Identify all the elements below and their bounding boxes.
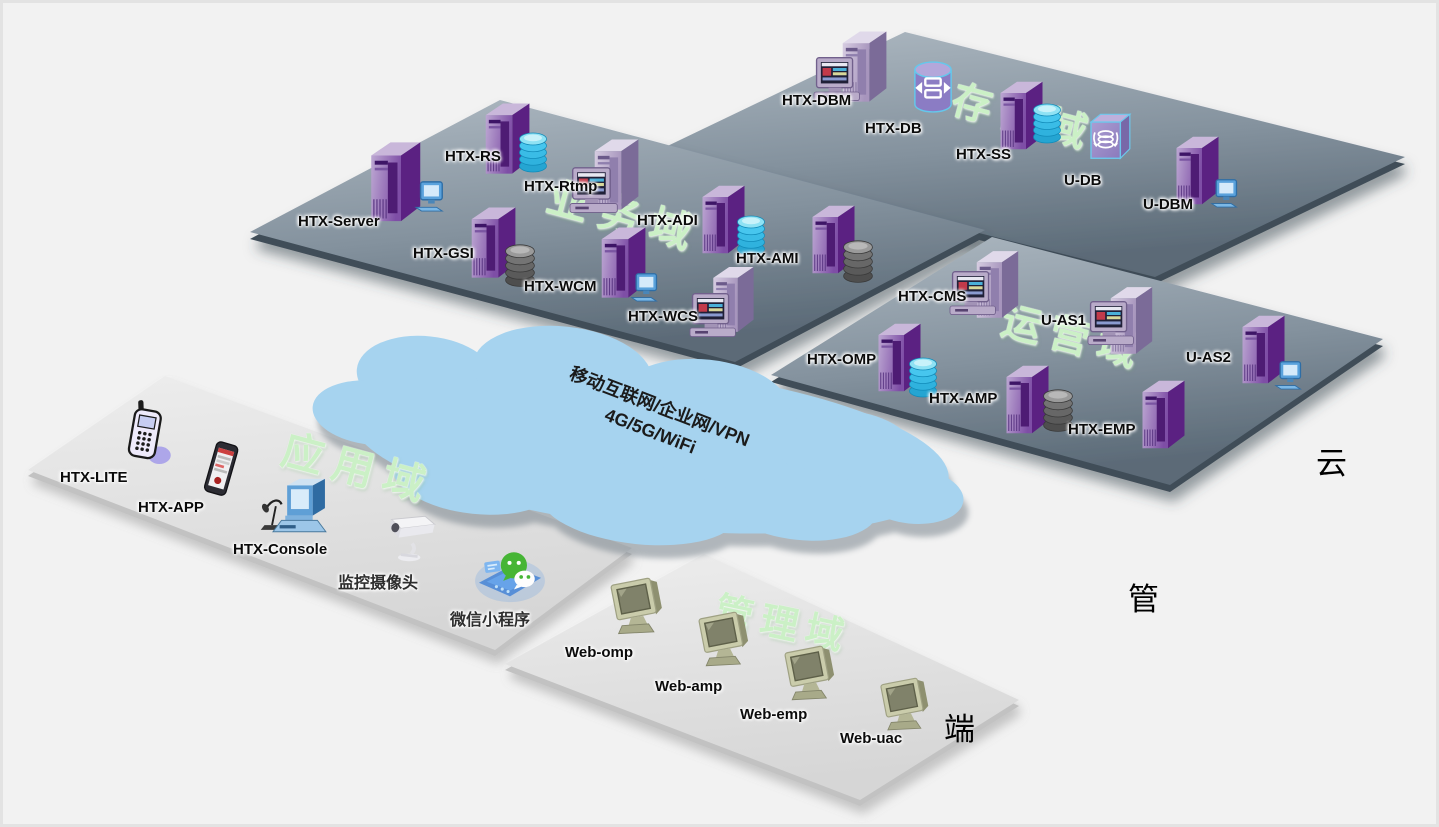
device-label: HTX-SS (956, 146, 1011, 163)
disk-stack-icon (842, 234, 874, 286)
device-label: HTX-LITE (60, 469, 128, 486)
device-label: Web-emp (740, 706, 807, 723)
device-label: HTX-WCS (628, 308, 698, 325)
device-label: Web-omp (565, 644, 633, 661)
side-label-cloud: 云 (1316, 448, 1347, 479)
device-label: 监控摄像头 (338, 569, 418, 593)
disk-stack-icon (1032, 94, 1062, 150)
crt-monitor-icon (608, 576, 668, 640)
device-label: HTX-DBM (782, 92, 851, 109)
crt-monitor-icon (782, 644, 840, 706)
device-label: HTX-APP (138, 499, 204, 516)
mini-pc-icon (628, 272, 662, 302)
mini-pc-icon (1208, 178, 1242, 208)
console-computer-icon (246, 476, 334, 544)
device-label: HTX-EMP (1068, 421, 1136, 438)
side-label-terminal: 端 (944, 714, 975, 745)
crt-monitor-icon (696, 610, 754, 672)
mini-pc-icon (1272, 360, 1306, 390)
device-label: HTX-RS (445, 148, 501, 165)
storage-box-icon (1085, 110, 1135, 160)
device-label: HTX-GSI (413, 245, 474, 262)
mini-pc-icon (412, 180, 448, 212)
device-label: 微信小程序 (450, 606, 530, 630)
disk-stack-icon (518, 122, 548, 180)
device-label: U-AS2 (1186, 349, 1231, 366)
crt-monitor-icon (878, 676, 934, 736)
wechat-miniprogram-icon (470, 542, 550, 608)
device-label: HTX-Rtmp (524, 178, 597, 195)
device-label: Web-uac (840, 730, 902, 747)
device-label: HTX-Console (233, 541, 327, 558)
device-label: Web-amp (655, 678, 722, 695)
device-label: HTX-CMS (898, 288, 966, 305)
architecture-diagram: 移动互联网/企业网/VPN 4G/5G/WiFi 存储域 业务域 运营域 应用域… (0, 0, 1439, 827)
feature-phone-icon (120, 398, 176, 474)
device-label: HTX-Server (298, 213, 380, 230)
workstation-icon (1086, 300, 1138, 348)
device-label: HTX-OMP (807, 351, 876, 368)
side-label-pipe: 管 (1128, 584, 1159, 615)
surveillance-camera-icon (378, 506, 446, 564)
platform-management-domain (505, 554, 1019, 806)
device-label: U-AS1 (1041, 312, 1086, 329)
device-label: U-DB (1064, 172, 1102, 189)
device-label: HTX-DB (865, 120, 922, 137)
server-tower-icon (1138, 374, 1186, 452)
scene-background (0, 0, 1439, 827)
database-cylinder-icon (910, 58, 956, 116)
device-label: U-DBM (1143, 196, 1193, 213)
device-label: HTX-AMP (929, 390, 997, 407)
smartphone-icon (196, 440, 244, 502)
device-label: HTX-WCM (524, 278, 596, 295)
